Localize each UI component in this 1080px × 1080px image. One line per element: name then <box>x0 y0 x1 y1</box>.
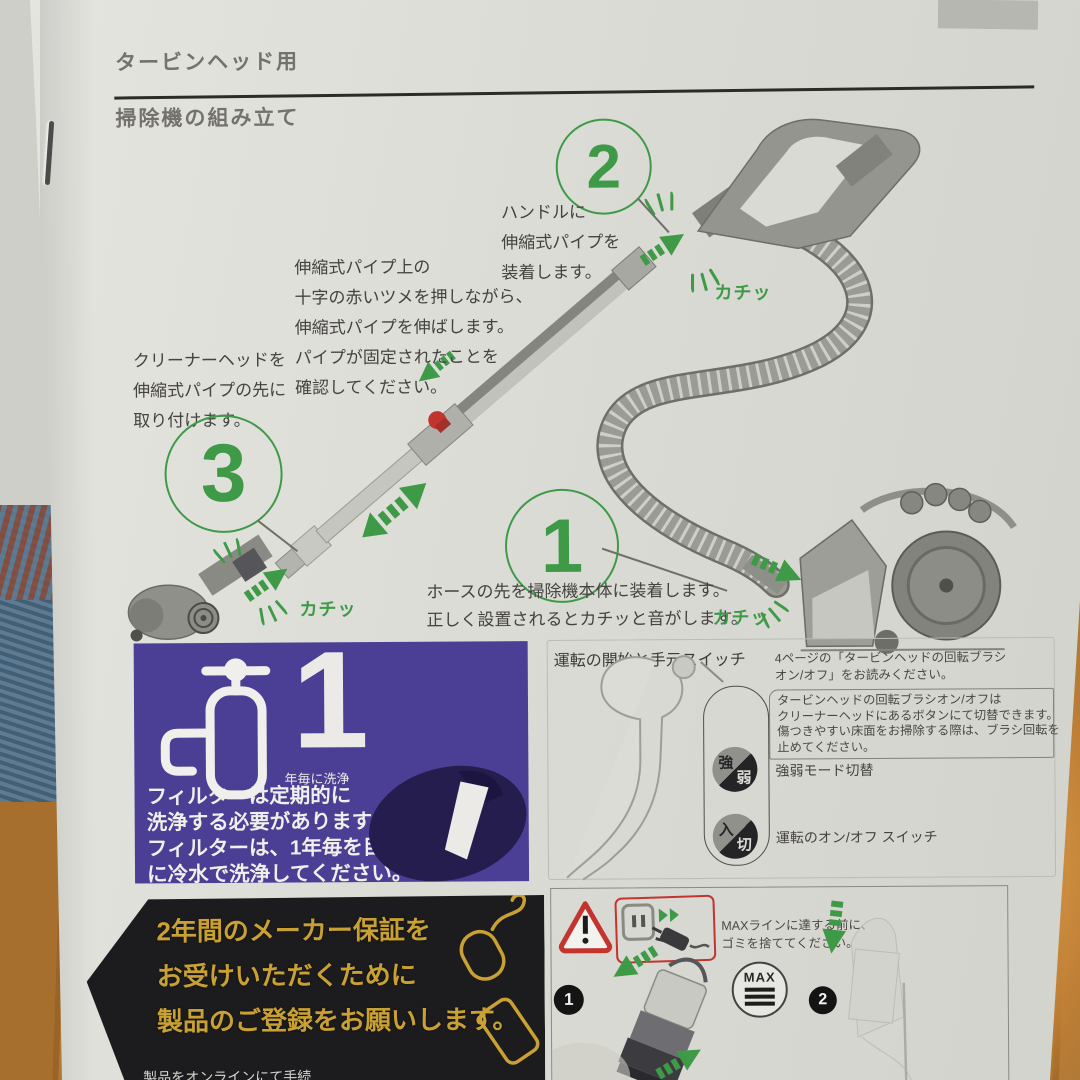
power-mode-label: 強弱モード切替 <box>775 760 873 781</box>
operation-note-text: タービンヘッドの回転ブラシオン/オフは クリーナーヘッドにあるボタンにて切替でき… <box>777 692 1060 756</box>
filter-wash-callout: 1 年毎に洗浄 フィルターは定期的に 洗浄する必要があります。 フィルターは、1… <box>134 641 529 883</box>
max-bar <box>745 987 775 992</box>
step-1-number: 1 <box>541 502 584 589</box>
max-bar <box>745 1001 775 1006</box>
bin-step-1-marker: 1 <box>554 985 584 1015</box>
onoff-off: 切 <box>737 834 752 855</box>
vacuum-body-illustration <box>800 483 1015 654</box>
faded-vacuum-illustration <box>848 918 912 1080</box>
click-sfx-label: カチッ <box>714 279 771 305</box>
warranty-callout: 2年間のメーカー保証を お受けいただくために 製品のご登録をお願いします。 製品… <box>84 893 545 1080</box>
bin-step-2-number: 2 <box>818 991 827 1009</box>
onoff-button: 入 切 <box>713 814 758 859</box>
fabric-pattern <box>0 490 58 600</box>
faded-vacuum-body <box>551 1042 630 1080</box>
click-burst-icon <box>257 600 288 627</box>
warranty-footer-partial: 製品をオンラインにて手続 <box>143 1066 311 1080</box>
page-content: タービンヘッド用 掃除機の組み立て <box>0 0 1080 1080</box>
onoff-on: 入 <box>719 819 734 840</box>
bin-step-1-number: 1 <box>564 990 574 1010</box>
step-3-circle: 3 <box>164 415 283 534</box>
step-3-number: 3 <box>200 427 246 521</box>
step-2-number: 2 <box>586 131 621 202</box>
power-mode-strong: 強 <box>718 752 733 773</box>
filter-illustration <box>362 753 529 883</box>
max-label: MAX <box>744 970 776 985</box>
click-sfx-label: カチッ <box>299 595 356 621</box>
bin-empty-panel: MAXラインに達する前に、 ゴミを捨ててください。 <box>550 885 1009 1080</box>
step-1-text: ホースの先を掃除機本体に装着します。 正しく設置されるとカチッと音がします。 <box>426 577 748 635</box>
mouse-icon <box>452 895 539 982</box>
arrow-icon <box>607 941 661 986</box>
onoff-label: 運転のオン/オフ スイッチ <box>776 827 938 848</box>
wand-handle-illustration <box>546 651 727 882</box>
pipe-tip-text: 伸縮式パイプ上の 十字の赤いツメを押しながら、 伸縮式パイプを伸ばします。 パイ… <box>294 252 533 403</box>
arrow-icon <box>820 900 850 955</box>
smartphone-icon <box>471 987 546 1071</box>
max-bar <box>745 994 775 999</box>
manual-photo: タービンヘッド用 掃除機の組み立て <box>0 0 1080 1080</box>
bin-step-2-marker: 2 <box>809 986 837 1014</box>
handle-illustration <box>691 119 920 249</box>
hose-illustration <box>608 220 861 595</box>
wash-interval-number: 1 <box>292 641 370 773</box>
power-mode-button: 強 弱 <box>712 747 757 792</box>
max-gauge-icon: MAX <box>732 961 788 1017</box>
manual-page: タービンヘッド用 掃除機の組み立て <box>0 0 1080 1080</box>
click-sfx-label: カチッ <box>712 604 769 630</box>
operation-reference: 4ページの「タービンヘッドの回転ブラシ オン/オフ」をお読みください。 <box>775 649 1007 683</box>
arrow-icon <box>636 225 690 271</box>
power-mode-weak: 弱 <box>736 767 751 788</box>
